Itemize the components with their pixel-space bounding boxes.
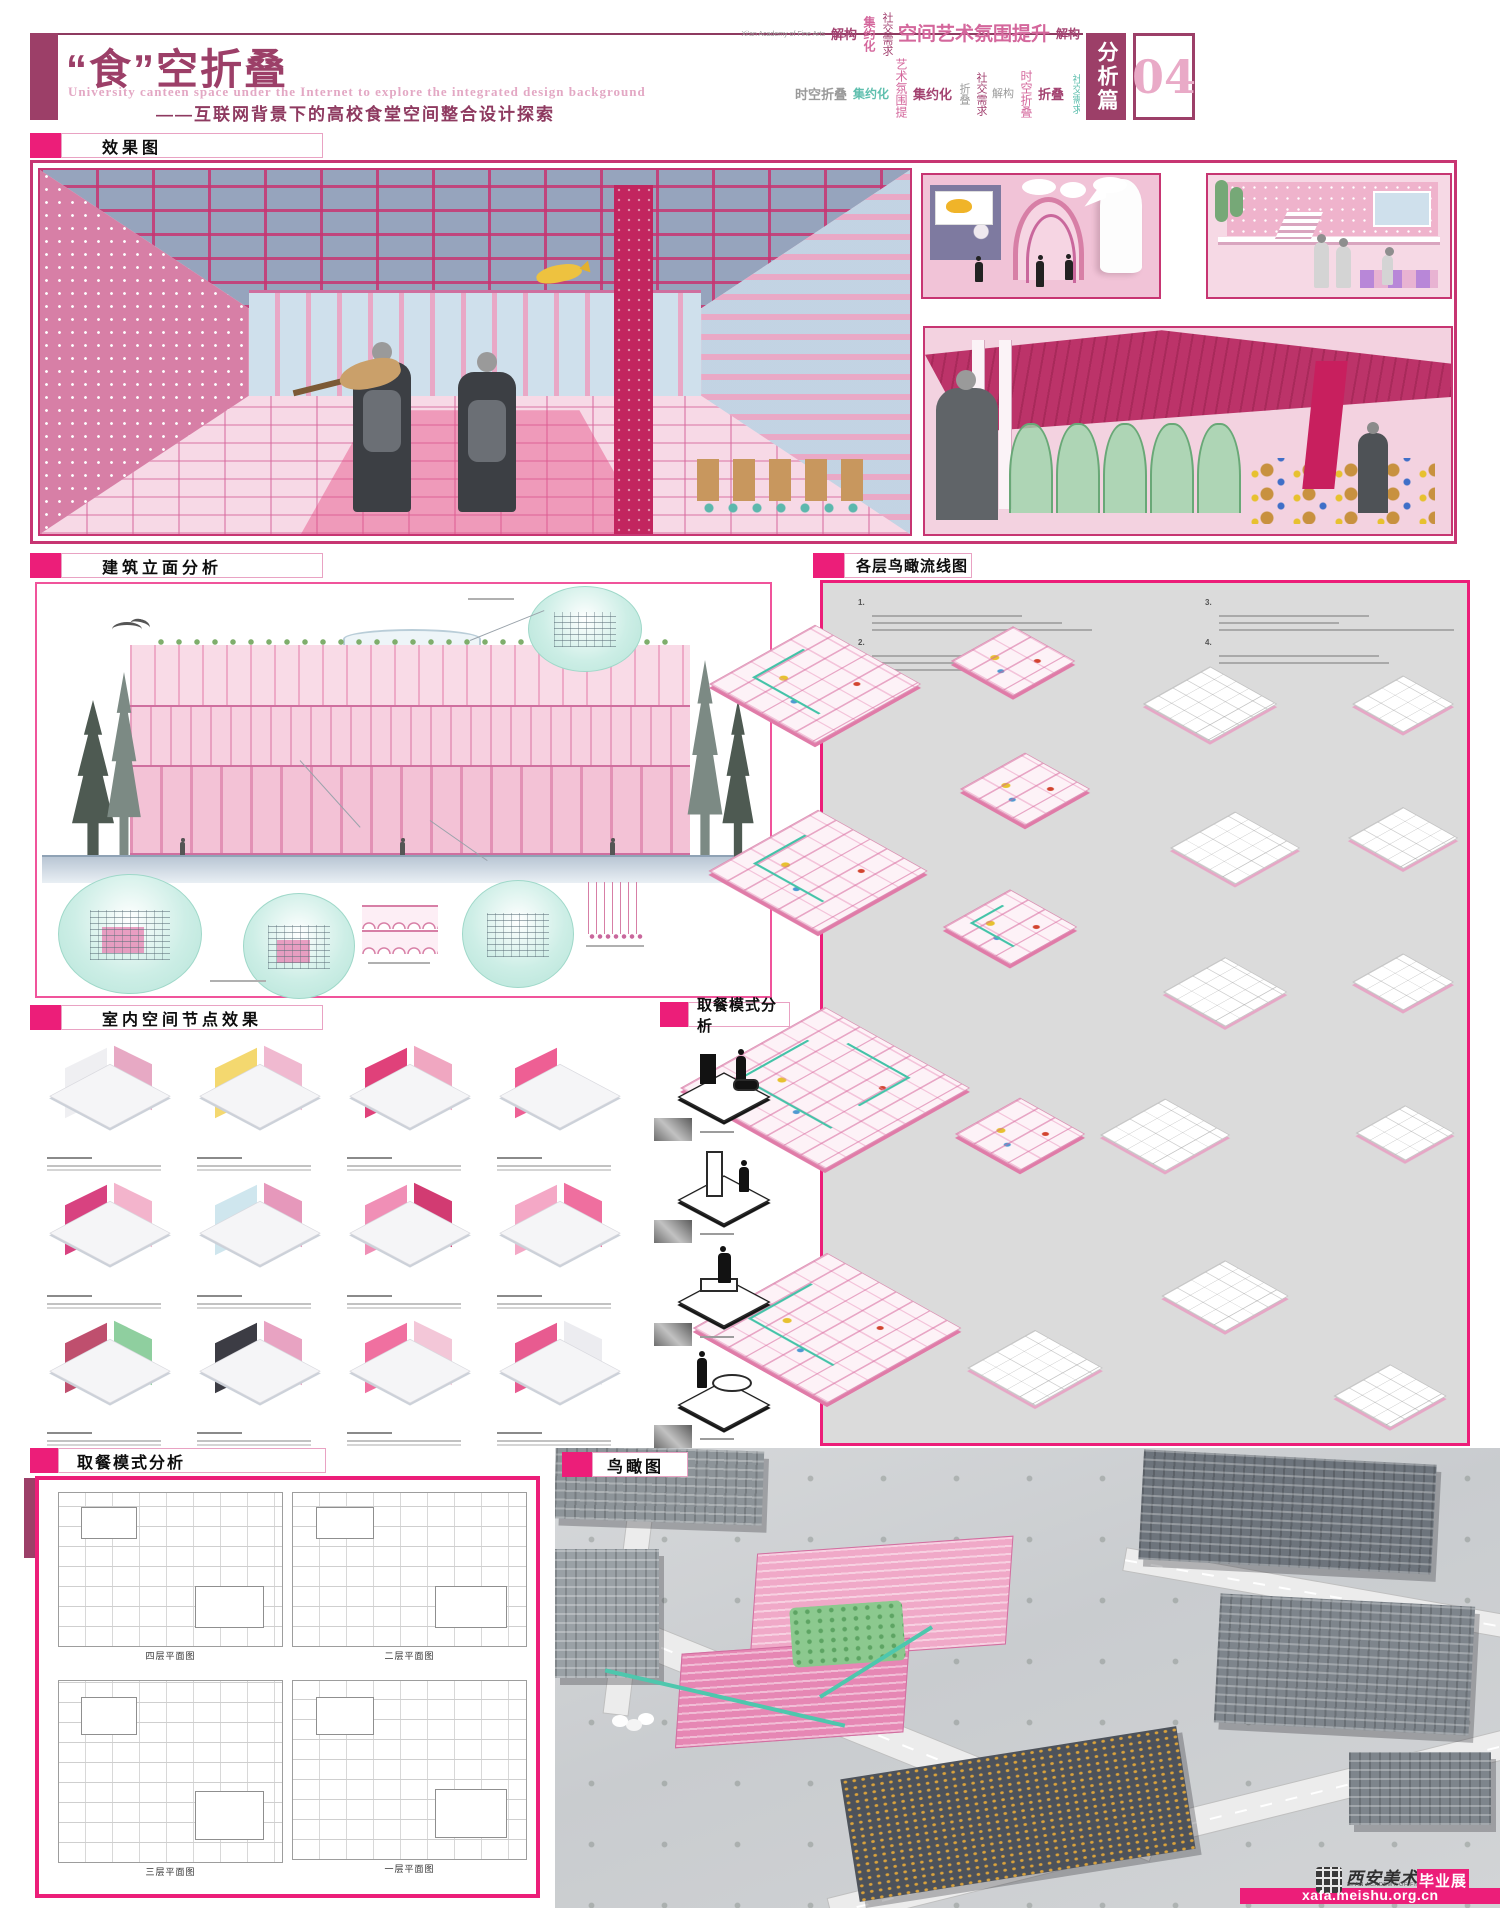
person-figure — [1314, 242, 1329, 288]
word-cloud-term: 集约化 — [913, 88, 952, 101]
roof-garden — [789, 1601, 906, 1669]
reference-photo — [654, 1425, 692, 1448]
interior-node-vignette — [35, 1177, 185, 1314]
section-label-circulation: 各层鸟瞰流线图 — [813, 553, 972, 578]
dining-mode-column — [648, 1042, 800, 1452]
detail-circle-interior — [58, 874, 202, 994]
interior-node-vignette — [335, 1040, 485, 1177]
person-figure — [718, 1253, 731, 1283]
axon-line-diagram — [1160, 788, 1310, 908]
person-figure — [1382, 255, 1393, 285]
floor-plan-4f: 四层平面图 — [58, 1492, 283, 1662]
chapter-badge: 分析篇 — [1086, 33, 1126, 120]
word-cloud-term: 空间艺术氛围提升 — [898, 25, 1050, 44]
kiosk-panel — [706, 1151, 723, 1197]
interior-node-vignette — [35, 1315, 185, 1452]
arch-sketch-lower — [362, 930, 438, 954]
vending-machine — [700, 1054, 716, 1084]
axon-line-diagram — [1135, 640, 1285, 768]
elevation-floor-2 — [130, 707, 690, 767]
axon-zone-colored — [945, 1068, 1095, 1200]
hanging-plant — [1215, 180, 1228, 222]
section-label-aerial: 鸟瞰图 — [562, 1452, 688, 1477]
render-two-storey — [1206, 173, 1452, 299]
mode-counter-pickup — [648, 1247, 800, 1350]
person-figure-camera — [1358, 433, 1388, 513]
interior-node-grid — [35, 1040, 635, 1452]
render-main-perspective — [38, 168, 912, 536]
interior-node-vignette — [335, 1177, 485, 1314]
word-cloud-term: 社交需求 — [881, 12, 892, 56]
caption-bar — [586, 945, 644, 947]
conveyor-loop — [712, 1374, 752, 1392]
person-figure — [180, 842, 185, 855]
bird-icon — [112, 622, 142, 637]
section-marker — [30, 1005, 61, 1030]
word-cloud-term: 艺术氛围提升 — [895, 58, 907, 118]
axon-line-diagram — [1340, 780, 1465, 895]
word-cloud-term: 时空折叠 — [1020, 70, 1032, 118]
poster-page: “食”空折叠 University canteen space under th… — [0, 0, 1500, 1928]
section-label-renders: 效果图 — [30, 133, 323, 158]
signage-board — [935, 191, 994, 225]
person-figure — [697, 1358, 707, 1388]
word-cloud-term: 集约化 — [853, 88, 889, 100]
dining-tables — [1360, 270, 1437, 288]
reference-photo — [654, 1323, 692, 1346]
greenhouse-booths — [1009, 423, 1240, 514]
floor-slab — [1218, 237, 1441, 242]
caption-bar — [210, 980, 266, 982]
render-greenhouse-canteen — [923, 326, 1453, 536]
section-label-dining-modes: 取餐模式分析 — [660, 1002, 790, 1027]
pink-column — [614, 185, 653, 534]
reference-photo — [654, 1220, 692, 1243]
detail-circle-node — [243, 893, 355, 999]
axon-floor3-colored — [690, 778, 945, 963]
render-statue-hall — [921, 173, 1161, 299]
interior-node-vignette — [185, 1040, 335, 1177]
dining-tables — [1246, 458, 1435, 524]
hanging-plant — [1230, 187, 1243, 217]
header-accent-bar — [30, 33, 58, 120]
axon-line-diagram — [1150, 1238, 1300, 1353]
interior-node-vignette — [185, 1315, 335, 1452]
dining-tables — [697, 459, 867, 501]
word-cloud-term: 集约化 — [863, 16, 875, 52]
caption-bar — [368, 962, 430, 964]
axon-zone-colored — [950, 728, 1100, 850]
detail-circle-dome — [528, 586, 642, 672]
word-cloud-term: 解构 — [831, 28, 857, 41]
note-group-3: 3. — [1205, 592, 1450, 631]
axon-zone-colored — [940, 600, 1085, 722]
word-cloud-term: Xi'an Academy of Fine Arts — [742, 31, 825, 38]
scooter-rider-figure — [736, 1056, 746, 1081]
person-figure — [1336, 246, 1351, 288]
word-cloud-term: 社交需求 — [1070, 74, 1080, 114]
poster-subtitle-zh: ——互联网背景下的高校食堂空间整合设计探索 — [156, 100, 555, 125]
plan-drawing — [58, 1492, 283, 1647]
floor-plan-3f: 三层平面图 — [58, 1680, 283, 1878]
word-cloud: Xi'an Academy of Fine Arts解构集约化社交需求空间艺术氛… — [715, 12, 1080, 118]
person-figure — [1065, 260, 1073, 280]
section-marker — [30, 1448, 58, 1473]
section-marker — [30, 553, 61, 578]
word-cloud-term: 解构 — [1056, 28, 1080, 40]
axon-line-diagram — [1345, 928, 1460, 1036]
interior-node-vignette — [335, 1315, 485, 1452]
section-marker — [813, 553, 844, 578]
interior-node-vignette — [185, 1177, 335, 1314]
plan-drawing — [292, 1680, 527, 1860]
word-cloud-term: 折叠 — [1038, 88, 1064, 101]
building-elevation — [130, 645, 690, 855]
axon-line-diagram — [1090, 1075, 1240, 1195]
axon-floor4-colored — [690, 595, 940, 773]
floor-plan-2f: 二层平面图 — [292, 1492, 527, 1662]
word-cloud-term: 解构 — [992, 89, 1014, 100]
chapter-number: 04 — [1133, 33, 1195, 120]
axon-line-diagram — [1345, 650, 1460, 758]
cloud-sculpture — [1022, 179, 1056, 195]
axon-zone-colored — [935, 858, 1085, 996]
aerial-render — [555, 1448, 1500, 1908]
word-cloud-term: 折叠 — [958, 83, 969, 105]
mode-conveyor — [648, 1350, 800, 1453]
person-figure — [400, 842, 405, 855]
interior-node-vignette — [485, 1040, 635, 1177]
scooter — [733, 1079, 759, 1091]
campus-building — [1349, 1752, 1491, 1826]
cloud-sculpture — [1060, 182, 1086, 198]
interior-node-vignette — [485, 1177, 635, 1314]
mode-delivery — [648, 1042, 800, 1145]
student-figure-backpack — [458, 372, 516, 512]
elevation-floor-1 — [130, 767, 690, 855]
arch-sketch-upper — [362, 905, 438, 929]
axon-line-diagram — [960, 1298, 1110, 1438]
word-cloud-term: 社交需求 — [975, 72, 986, 116]
person-figure — [610, 842, 615, 855]
section-marker — [660, 1002, 688, 1027]
section-label-floor-plans: 取餐模式分析 — [30, 1448, 326, 1473]
interior-node-vignette — [485, 1315, 635, 1452]
poster-subtitle-en: University canteen space under the Inter… — [68, 84, 646, 100]
section-marker — [30, 133, 61, 158]
word-cloud-term: 时空折叠 — [795, 88, 847, 101]
floor-plan-1f: 一层平面图 — [292, 1680, 527, 1875]
arched-portal — [1013, 197, 1084, 280]
plan-drawing — [292, 1492, 527, 1647]
section-label-interior-nodes: 室内空间节点效果 — [30, 1005, 323, 1030]
campus-building-tall — [1213, 1593, 1475, 1735]
detail-circle-furniture — [462, 880, 574, 988]
interior-node-vignette — [35, 1040, 185, 1177]
plan-drawing — [58, 1680, 283, 1863]
axon-line-diagram — [1350, 1080, 1460, 1185]
axon-line-diagram — [1155, 932, 1295, 1052]
person-figure — [975, 262, 983, 282]
watermark-url: xafa.meishu.org.cn — [1302, 1887, 1439, 1903]
person-figure — [739, 1167, 749, 1192]
person-figure-large — [936, 388, 998, 520]
campus-building-tall — [1138, 1450, 1436, 1576]
section-label-elevation: 建筑立面分析 — [30, 553, 323, 578]
axon-line-diagram — [1320, 1348, 1460, 1443]
white-canopies — [612, 1715, 628, 1727]
campus-building — [555, 1549, 659, 1678]
person-figure — [1036, 261, 1044, 287]
caption-bar — [468, 598, 514, 600]
chandelier-sketch — [588, 882, 644, 934]
section-marker — [562, 1452, 592, 1477]
reference-photo — [654, 1118, 692, 1141]
mode-self-service-screen — [648, 1145, 800, 1248]
window — [1373, 191, 1430, 227]
